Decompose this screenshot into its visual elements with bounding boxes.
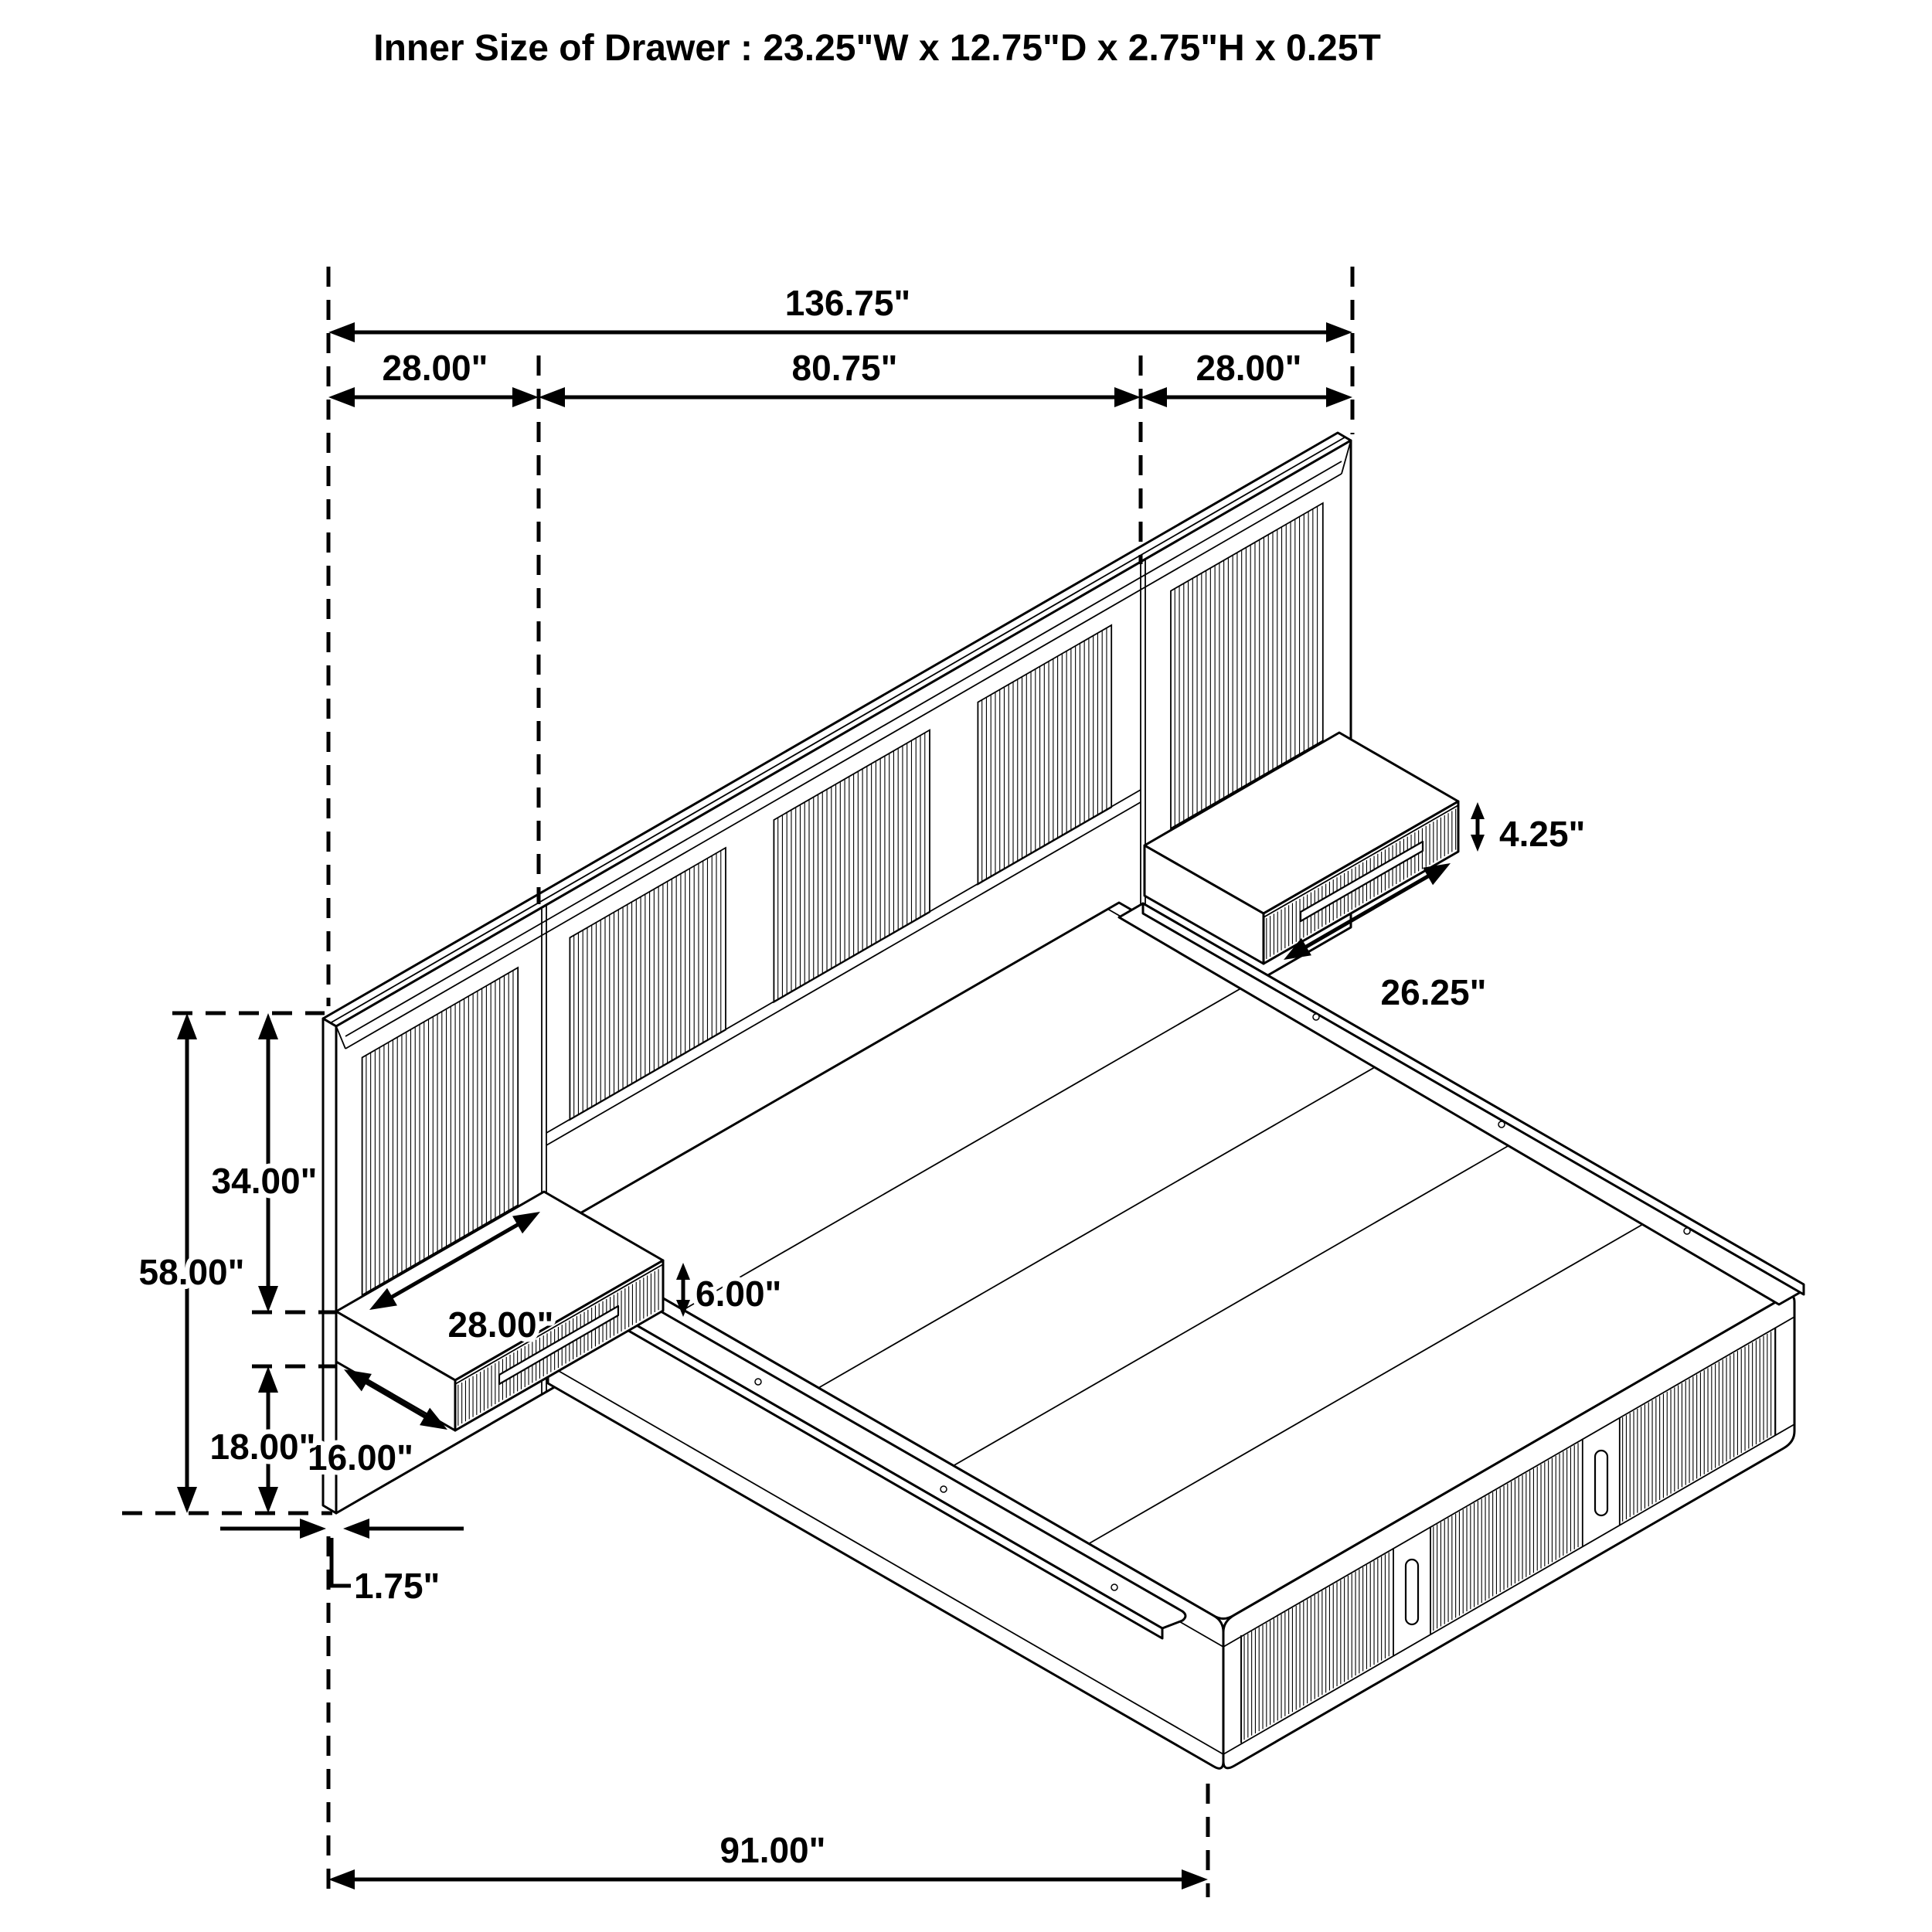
label-headboard-total-height: 58.00"	[139, 1252, 245, 1292]
leader-bracket	[332, 1538, 351, 1586]
arrowhead	[1182, 1869, 1208, 1889]
screw-dot	[1313, 1014, 1319, 1020]
label-right-shelf-width: 26.25"	[1381, 972, 1487, 1012]
arrowhead	[258, 1286, 278, 1312]
arrowhead	[328, 387, 355, 407]
label-left-section-width: 28.00"	[383, 348, 488, 388]
arrowhead	[258, 1013, 278, 1039]
label-overall-width: 136.75"	[785, 283, 911, 323]
arrowhead	[343, 1519, 369, 1539]
arrowhead	[258, 1487, 278, 1513]
screw-dot	[1684, 1228, 1690, 1234]
label-lower-height: 18.00"	[210, 1427, 316, 1467]
diagram-title: Inner Size of Drawer : 23.25"W x 12.75"D…	[373, 28, 1381, 69]
arrowhead	[1326, 387, 1352, 407]
arrowhead	[177, 1013, 197, 1039]
label-left-shelf-width: 28.00"	[448, 1304, 554, 1345]
arrowhead	[1326, 322, 1352, 342]
label-bed-length: 91.00"	[720, 1830, 826, 1870]
arrowhead	[328, 1869, 355, 1889]
arrowhead	[258, 1366, 278, 1393]
arrowhead	[328, 322, 355, 342]
bed-line-art	[323, 433, 1804, 1768]
label-panel-thickness: 1.75"	[354, 1566, 440, 1606]
arrowhead	[177, 1487, 197, 1513]
arrowhead	[512, 387, 539, 407]
arrowhead	[1114, 387, 1141, 407]
label-headboard-upper-height: 34.00"	[212, 1161, 318, 1201]
label-left-shelf-depth: 16.00"	[308, 1437, 413, 1478]
arrowhead	[1471, 802, 1485, 819]
diagram-page: Inner Size of Drawer : 23.25"W x 12.75"D…	[0, 0, 1932, 1932]
footboard-drawer-handle-left	[1406, 1560, 1418, 1624]
arrowhead	[539, 387, 565, 407]
label-middle-section-width: 80.75"	[792, 348, 898, 388]
footboard-drawer-handle-right	[1595, 1451, 1607, 1515]
label-right-shelf-height: 4.25"	[1499, 814, 1585, 854]
label-left-shelf-height: 6.00"	[696, 1274, 781, 1314]
screw-dot	[940, 1486, 947, 1492]
screw-dot	[1111, 1584, 1117, 1590]
screw-dot	[1498, 1121, 1505, 1128]
label-right-section-width: 28.00"	[1196, 348, 1302, 388]
bed-dimension-diagram: Inner Size of Drawer : 23.25"W x 12.75"D…	[0, 0, 1932, 1932]
arrowhead	[300, 1519, 326, 1539]
arrowhead	[1471, 835, 1485, 852]
screw-dot	[755, 1379, 761, 1385]
arrowhead	[1141, 387, 1167, 407]
